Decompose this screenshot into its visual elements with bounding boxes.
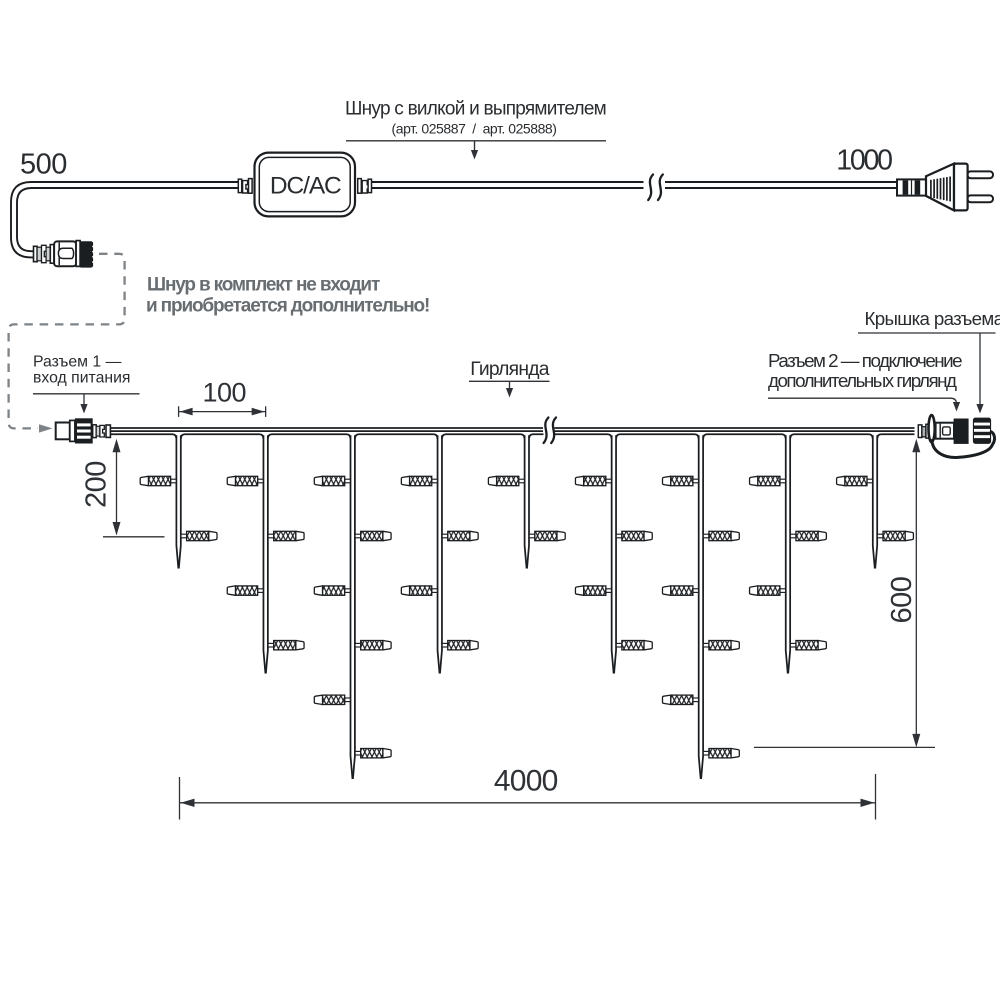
svg-text:200: 200 — [81, 461, 113, 508]
svg-text:вход питания: вход питания — [33, 370, 130, 387]
svg-text:дополнительных гирлянд: дополнительных гирлянд — [768, 370, 957, 391]
svg-text:Шнур в комплект не входит: Шнур в комплект не входит — [147, 275, 380, 296]
svg-text:и приобретается дополнительно!: и приобретается дополнительно! — [146, 296, 429, 317]
svg-text:Разъем 2 — подключение: Разъем 2 — подключение — [768, 350, 962, 371]
svg-text:Крышка разъема: Крышка разъема — [865, 308, 1000, 329]
svg-text:Разъем 1 —: Разъем 1 — — [33, 354, 122, 371]
svg-text:DC/AC: DC/AC — [270, 173, 341, 200]
svg-text:600: 600 — [886, 577, 918, 624]
svg-text:4000: 4000 — [494, 765, 558, 798]
svg-text:Шнур с вилкой и выпрямителем: Шнур с вилкой и выпрямителем — [345, 99, 606, 120]
svg-text:100: 100 — [203, 377, 247, 407]
svg-text:(арт. 025887 / арт. 025888): (арт. 025887 / арт. 025888) — [392, 121, 557, 137]
svg-text:Гирлянда: Гирлянда — [470, 359, 550, 380]
svg-text:500: 500 — [20, 149, 67, 181]
svg-text:1000: 1000 — [836, 145, 892, 177]
